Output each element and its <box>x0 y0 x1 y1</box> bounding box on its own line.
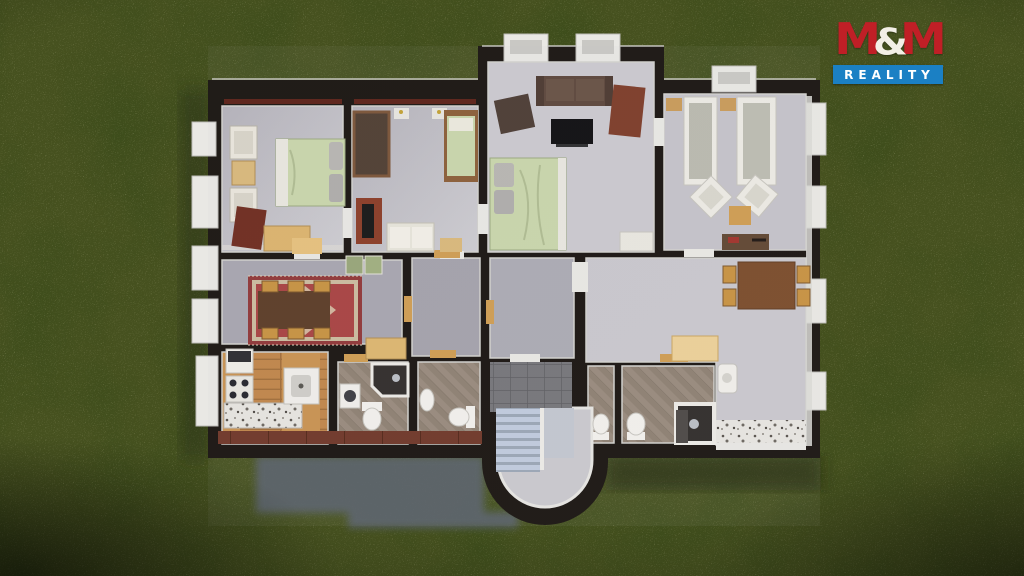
floorplan-render <box>0 0 1024 576</box>
logo-wordmark: M & M <box>834 18 941 61</box>
logo-m-right: M <box>900 18 942 61</box>
logo-tagline: REALITY <box>833 65 943 84</box>
mm-reality-logo: M & M REALITY <box>824 16 952 84</box>
logo-m-left: M <box>834 18 876 61</box>
light-sweep <box>208 46 820 526</box>
logo-ampersand: & <box>873 24 903 61</box>
screenshot-stage: M & M REALITY <box>0 0 1024 576</box>
